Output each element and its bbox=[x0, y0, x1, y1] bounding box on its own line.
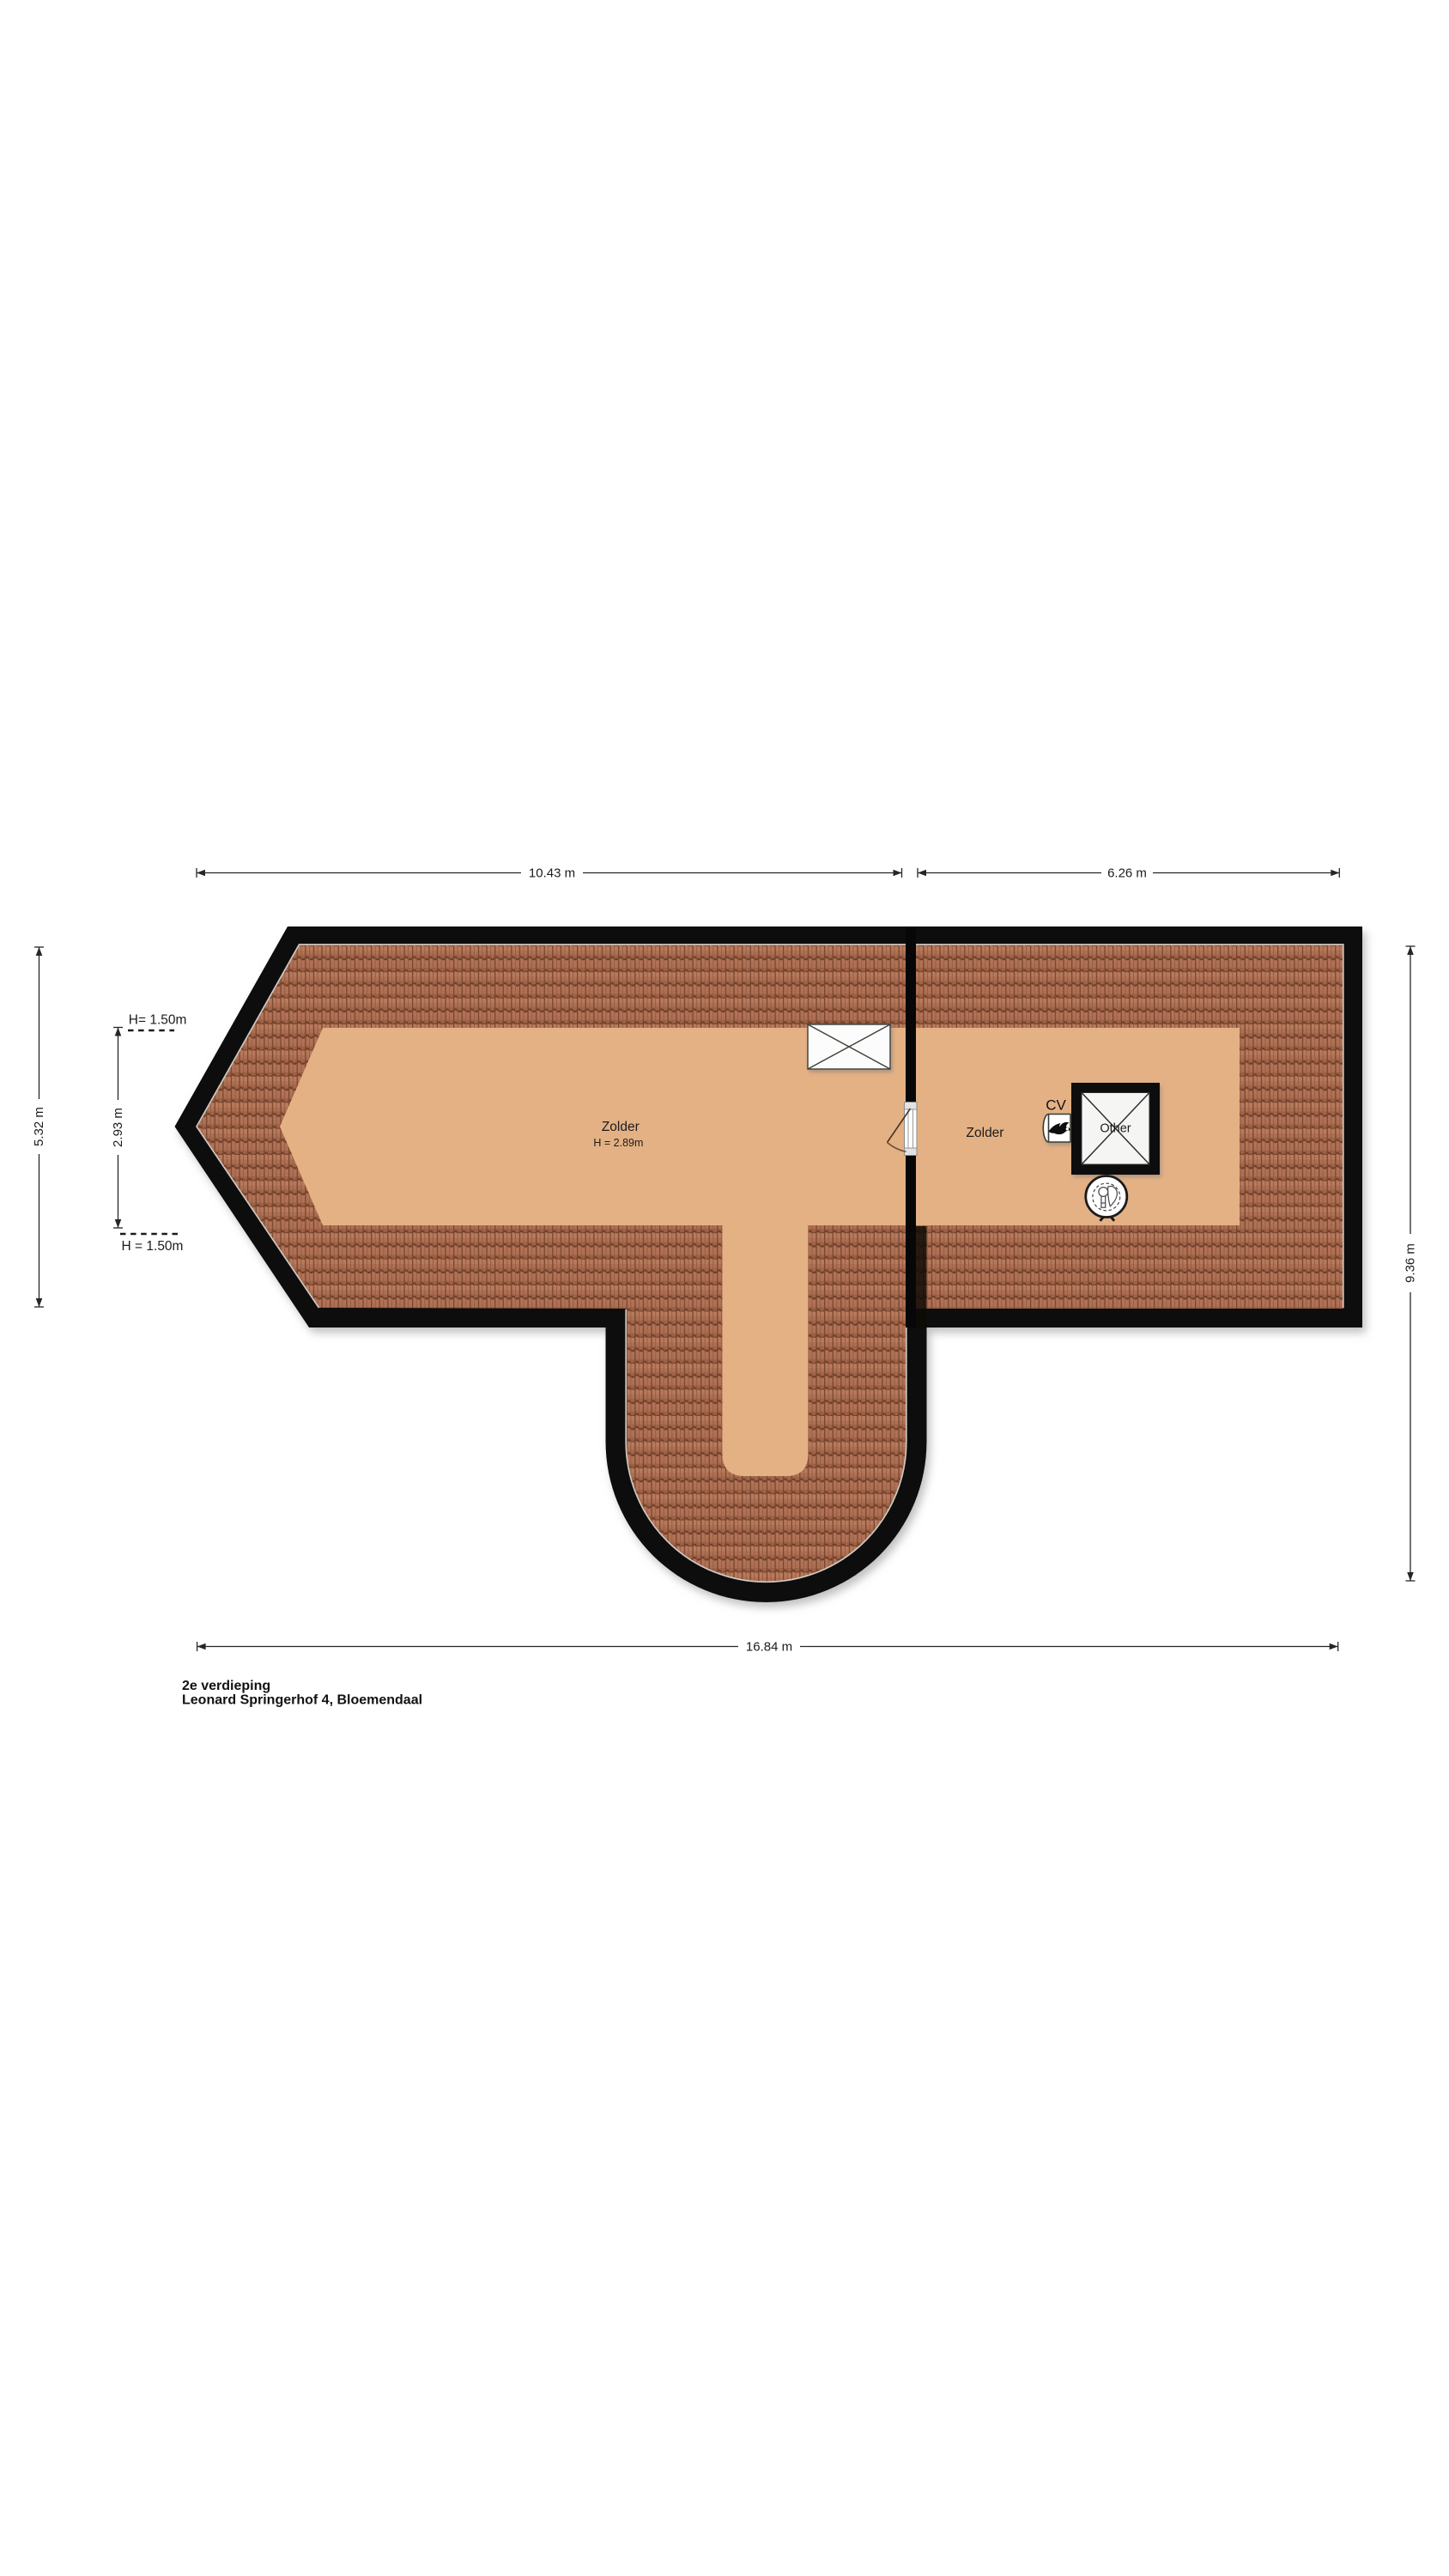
svg-text:Zolder: Zolder bbox=[602, 1120, 640, 1134]
svg-text:Leonard Springerhof 4, Bloemen: Leonard Springerhof 4, Bloemendaal bbox=[182, 1692, 422, 1707]
svg-text:H = 2.89m: H = 2.89m bbox=[593, 1137, 643, 1149]
svg-text:2e verdieping: 2e verdieping bbox=[182, 1679, 270, 1693]
svg-text:CV: CV bbox=[1046, 1097, 1066, 1113]
svg-text:6.26 m: 6.26 m bbox=[1107, 866, 1147, 881]
svg-text:Other: Other bbox=[1100, 1122, 1131, 1136]
svg-text:10.43 m: 10.43 m bbox=[529, 866, 575, 881]
svg-text:Zolder: Zolder bbox=[967, 1126, 1004, 1140]
svg-text:16.84 m: 16.84 m bbox=[746, 1640, 792, 1655]
svg-text:2.93 m: 2.93 m bbox=[111, 1108, 125, 1147]
svg-text:H = 1.50m: H = 1.50m bbox=[122, 1239, 184, 1254]
svg-text:5.32 m: 5.32 m bbox=[32, 1107, 46, 1146]
svg-text:9.36 m: 9.36 m bbox=[1404, 1243, 1418, 1283]
svg-text:H= 1.50m: H= 1.50m bbox=[129, 1012, 187, 1027]
